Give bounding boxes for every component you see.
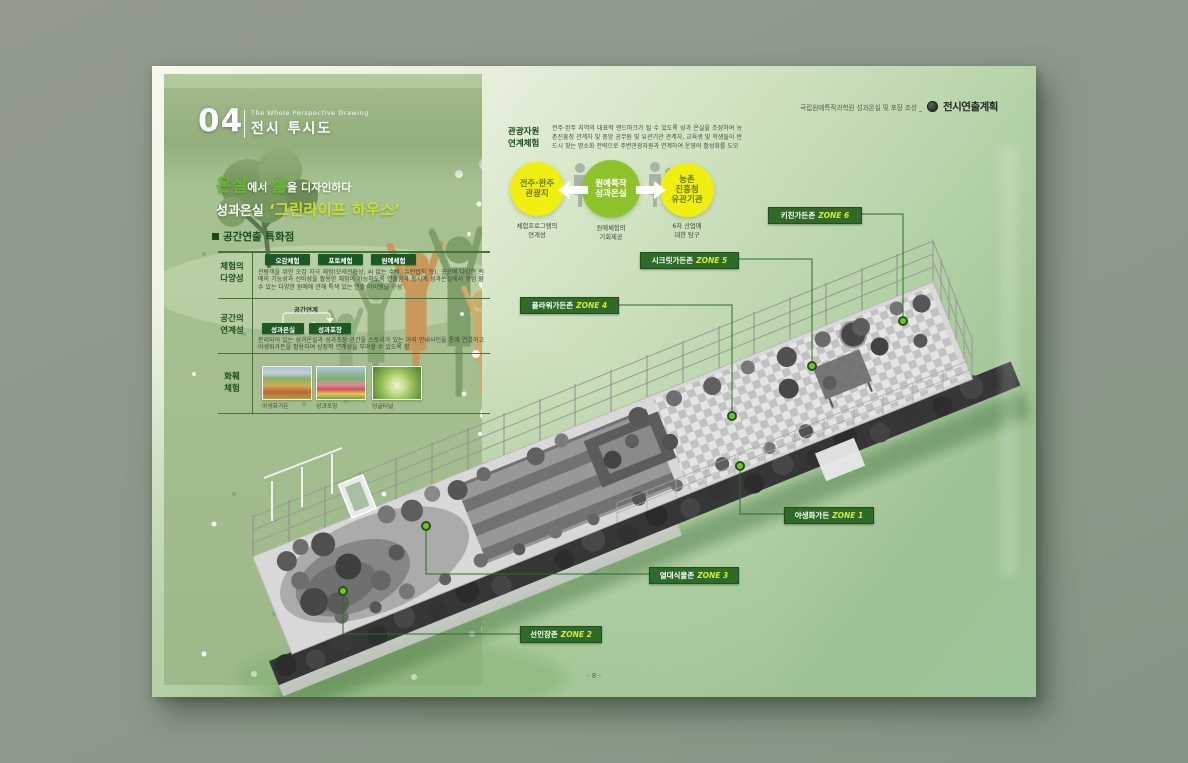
zone-label-kitchen-garden: 키친가든존 ZONE 6 <box>768 207 862 224</box>
zone-code: ZONE 5 <box>696 256 727 265</box>
zone-code: ZONE 4 <box>576 301 607 310</box>
zone-label-wildflower-garden: 야생화가든 ZONE 1 <box>784 507 874 524</box>
zone-name: 키친가든존 <box>781 210 816 221</box>
arrow-left-icon <box>558 181 588 199</box>
zone-name: 열대식물존 <box>660 570 695 581</box>
zone-name: 선인장존 <box>530 629 558 640</box>
arrow-right-icon <box>636 181 666 199</box>
zone-name: 시크릿가든존 <box>652 255 693 266</box>
zone-label-tropical-plants: 열대식물존 ZONE 3 <box>649 567 739 584</box>
zone-code: ZONE 6 <box>818 211 849 220</box>
zone-label-cactus: 선인장존 ZONE 2 <box>520 626 602 643</box>
circle-arrows <box>152 66 1036 266</box>
zone-code: ZONE 2 <box>561 630 592 639</box>
zone-code: ZONE 3 <box>697 571 728 580</box>
document-page: 04 The Whole Perspective Drawing 전시 투시도 … <box>152 66 1036 697</box>
zone-label-flower-garden: 플라워가든존 ZONE 4 <box>520 297 619 314</box>
zone-code: ZONE 1 <box>832 511 863 520</box>
zone-name: 야생화가든 <box>795 510 830 521</box>
zone-label-secret-garden: 시크릿가든존 ZONE 5 <box>640 252 739 269</box>
zone-name: 플라워가든존 <box>532 300 573 311</box>
